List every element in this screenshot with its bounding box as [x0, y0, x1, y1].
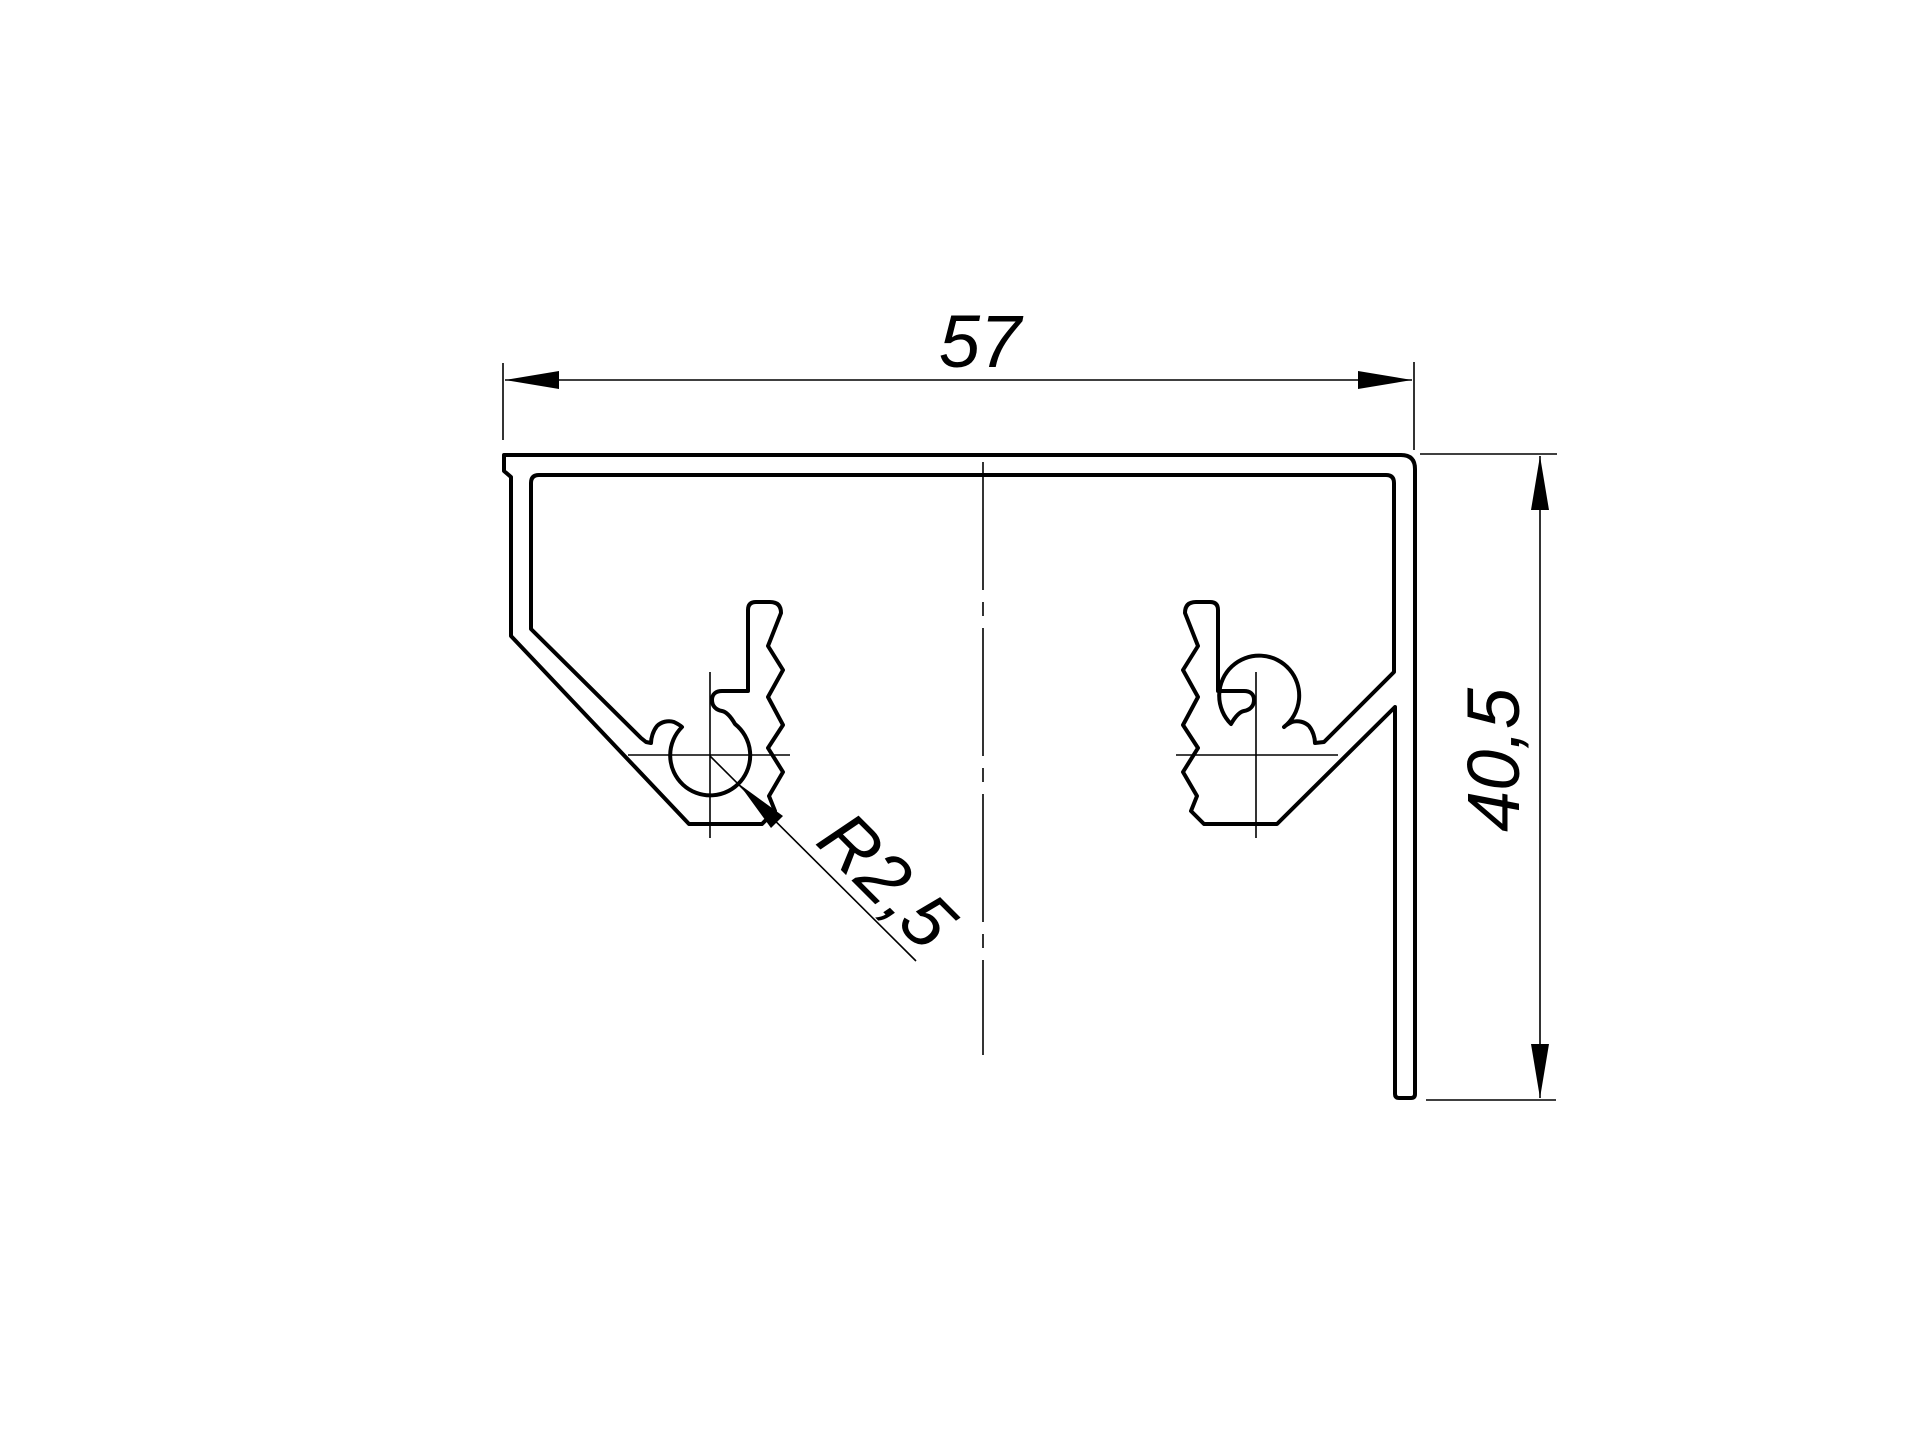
- height-dimension: 40,5: [1420, 454, 1557, 1100]
- width-arrow-right: [1358, 371, 1412, 389]
- width-dimension: 57: [503, 300, 1414, 450]
- radius-dimension-label: R2,5: [803, 796, 973, 966]
- radius-dimension: R2,5: [710, 756, 973, 965]
- height-arrow-bottom: [1531, 1044, 1549, 1098]
- technical-drawing-canvas: 57 40,5 R2,5: [0, 0, 1919, 1440]
- height-arrow-top: [1531, 456, 1549, 510]
- height-dimension-label: 40,5: [1452, 687, 1535, 832]
- profile-outline: [504, 455, 1415, 1098]
- crosshair-right: [1176, 672, 1338, 838]
- technical-drawing-page: 57 40,5 R2,5: [0, 0, 1919, 1440]
- width-arrow-left: [505, 371, 559, 389]
- width-dimension-label: 57: [939, 300, 1024, 383]
- radius-arrow: [739, 784, 783, 828]
